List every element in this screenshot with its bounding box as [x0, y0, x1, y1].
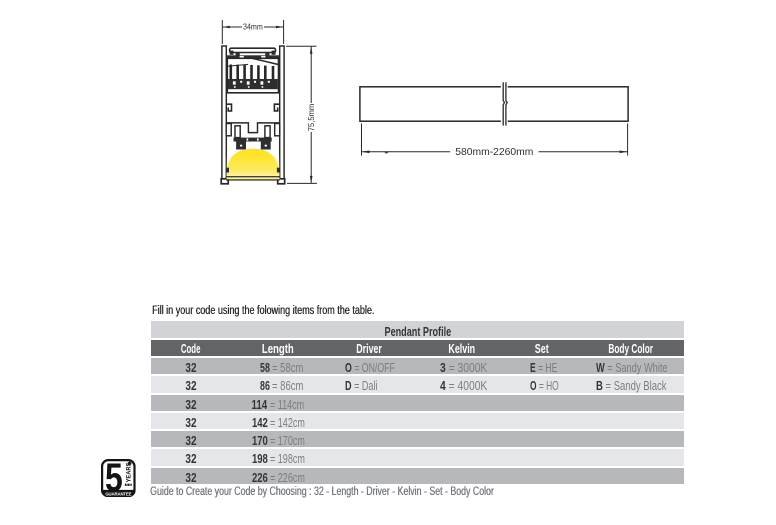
svg-text:YEARS: YEARS	[125, 462, 133, 482]
svg-text:580mm-2260mm: 580mm-2260mm	[455, 147, 533, 158]
svg-text:5: 5	[105, 459, 123, 497]
svg-text:34mm: 34mm	[243, 23, 263, 32]
svg-text:75,5mm: 75,5mm	[307, 104, 316, 132]
